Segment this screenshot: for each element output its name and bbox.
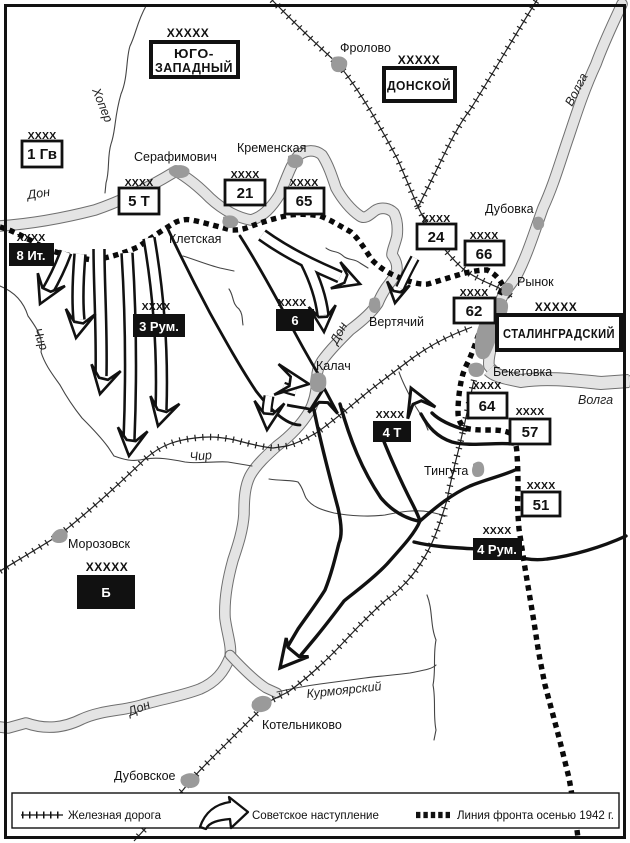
svg-text:XXXXX: XXXXX: [86, 560, 129, 574]
svg-text:51: 51: [533, 497, 550, 514]
svg-text:Линия фронта осенью 1942 г.: Линия фронта осенью 1942 г.: [457, 810, 614, 822]
svg-text:Серафимович: Серафимович: [134, 150, 217, 164]
svg-text:64: 64: [479, 398, 496, 415]
svg-text:XXXX: XXXX: [376, 409, 405, 421]
svg-text:Дубовское: Дубовское: [114, 769, 176, 783]
svg-text:4 Рум.: 4 Рум.: [477, 542, 517, 557]
svg-text:65: 65: [296, 193, 313, 210]
svg-text:ЮГО-: ЮГО-: [174, 46, 214, 61]
svg-text:XXXX: XXXX: [17, 232, 46, 244]
svg-text:ЗАПАДНЫЙ: ЗАПАДНЫЙ: [155, 60, 233, 75]
svg-text:Фролово: Фролово: [340, 41, 391, 55]
svg-text:XXXX: XXXX: [28, 130, 57, 142]
svg-text:XXXX: XXXX: [460, 287, 489, 299]
svg-text:Котельниково: Котельниково: [262, 718, 342, 732]
svg-text:66: 66: [476, 246, 493, 263]
svg-text:XXXX: XXXX: [142, 301, 171, 313]
svg-text:ДОНСКОЙ: ДОНСКОЙ: [387, 78, 451, 93]
svg-text:24: 24: [428, 229, 445, 246]
svg-text:62: 62: [466, 303, 483, 320]
svg-text:XXXX: XXXX: [473, 380, 502, 392]
svg-text:XXXX: XXXX: [422, 213, 451, 225]
svg-text:XXXX: XXXX: [516, 406, 545, 418]
svg-text:Железная дорога: Железная дорога: [68, 810, 162, 822]
svg-text:СТАЛИНГРАДСКИЙ: СТАЛИНГРАДСКИЙ: [503, 326, 615, 341]
svg-text:Клетская: Клетская: [169, 232, 221, 246]
svg-text:XXXXX: XXXXX: [167, 26, 210, 40]
svg-text:1 Гв: 1 Гв: [27, 146, 57, 163]
svg-text:XXXX: XXXX: [527, 480, 556, 492]
svg-text:21: 21: [237, 185, 254, 202]
svg-text:4 Т: 4 Т: [383, 425, 402, 440]
svg-text:Дубовка: Дубовка: [485, 202, 534, 216]
svg-text:57: 57: [522, 424, 539, 441]
svg-text:Вертячий: Вертячий: [369, 315, 424, 329]
svg-text:XXXXX: XXXXX: [398, 53, 441, 67]
svg-text:Чир: Чир: [189, 448, 213, 464]
svg-text:Морозовск: Морозовск: [68, 537, 131, 551]
svg-text:Тингута: Тингута: [424, 464, 468, 478]
svg-text:Волга: Волга: [578, 393, 613, 407]
svg-text:Б: Б: [101, 585, 110, 600]
svg-text:Советское наступление: Советское наступление: [252, 810, 379, 822]
svg-text:Бекетовка: Бекетовка: [493, 365, 552, 379]
svg-text:Рынок: Рынок: [517, 275, 554, 289]
svg-text:8 Ит.: 8 Ит.: [16, 248, 45, 263]
svg-text:3 Рум.: 3 Рум.: [139, 319, 179, 334]
svg-text:XXXXX: XXXXX: [535, 300, 578, 314]
svg-text:XXXX: XXXX: [470, 230, 499, 242]
svg-text:Кременская: Кременская: [237, 141, 306, 155]
svg-text:XXXX: XXXX: [483, 525, 512, 537]
svg-text:XXXX: XXXX: [290, 177, 319, 189]
svg-text:XXXX: XXXX: [278, 297, 307, 309]
svg-text:5 Т: 5 Т: [128, 193, 150, 210]
svg-text:XXXX: XXXX: [231, 169, 260, 181]
svg-text:6: 6: [291, 313, 298, 328]
svg-text:Калач: Калач: [316, 359, 351, 373]
svg-text:XXXX: XXXX: [125, 177, 154, 189]
